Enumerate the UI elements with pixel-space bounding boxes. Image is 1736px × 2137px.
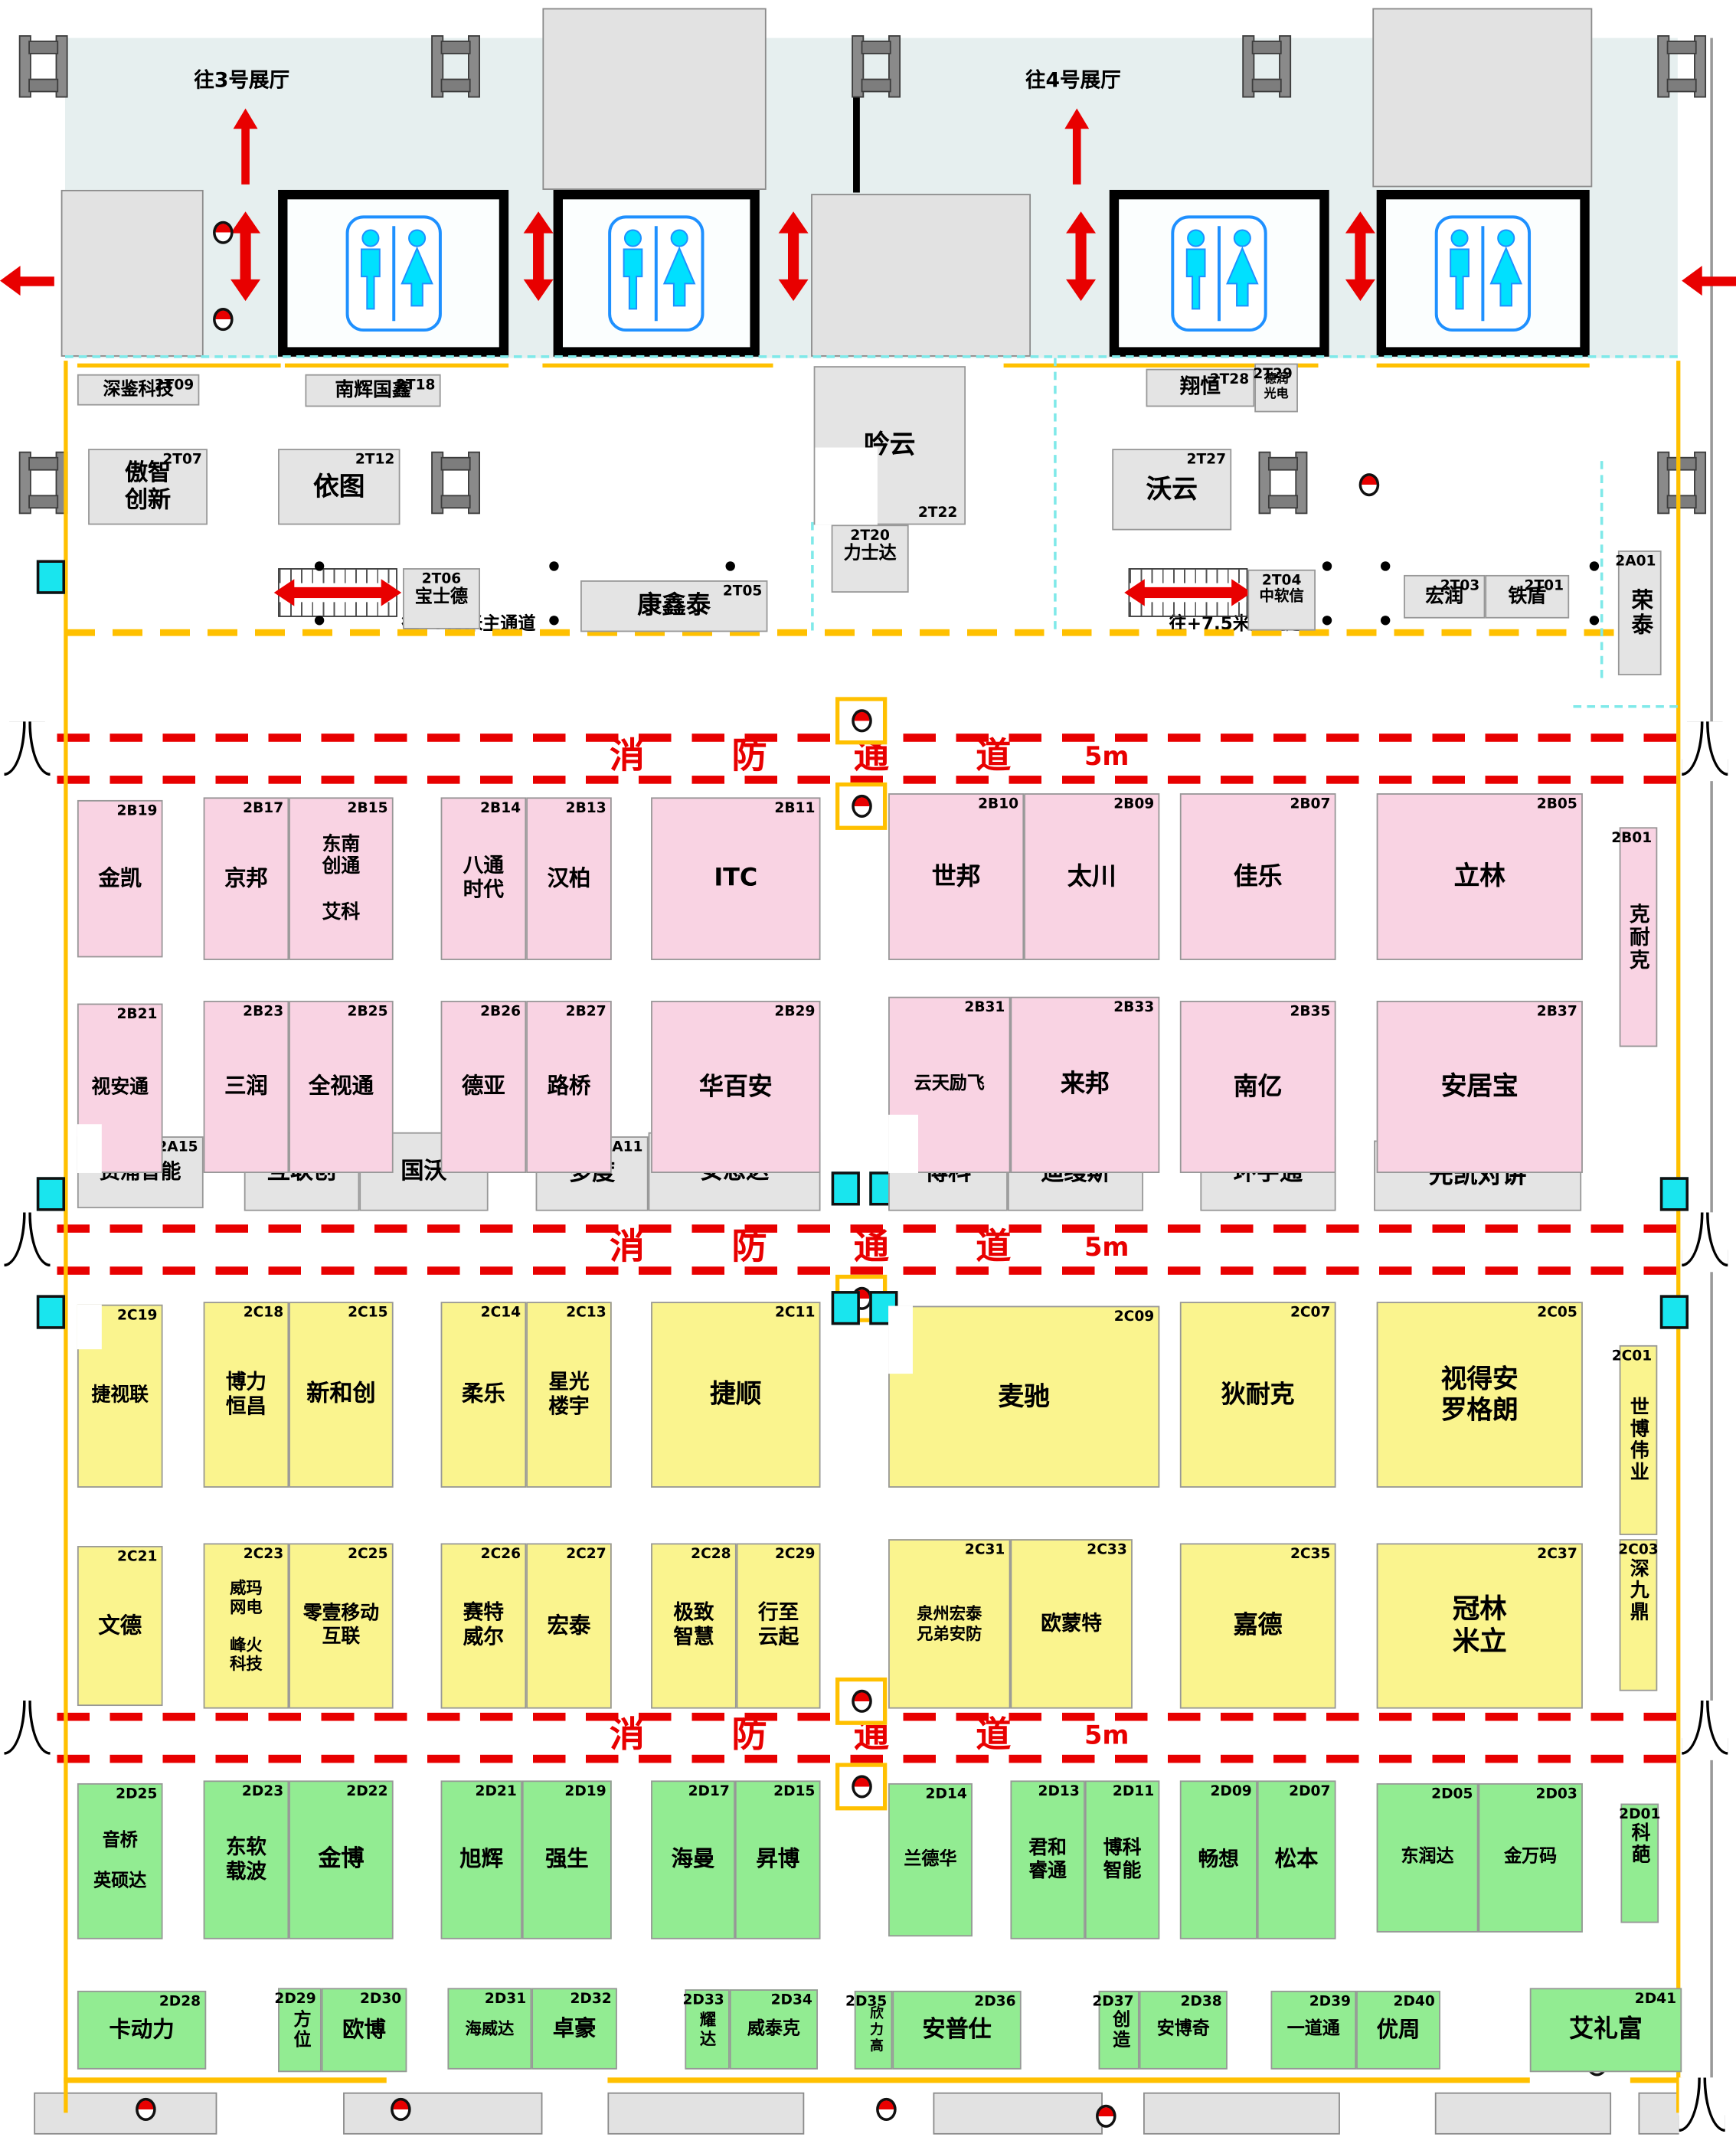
no-entry-sign-icon bbox=[851, 1690, 871, 1713]
boundary-line bbox=[1630, 2077, 1682, 2083]
booth-2C07[interactable]: 2C07狄耐克 bbox=[1180, 1302, 1336, 1488]
column-icon bbox=[431, 452, 480, 514]
booth-name: 方位 bbox=[291, 2010, 309, 2050]
booth-name: 狄耐克 bbox=[1221, 1381, 1295, 1410]
booth-name: 柔乐 bbox=[462, 1382, 505, 1407]
column-dot bbox=[549, 561, 558, 570]
hydrant-marker bbox=[37, 1177, 65, 1211]
booth-id: 2B17 bbox=[243, 800, 283, 816]
booth-id: 2C03 bbox=[1618, 1542, 1658, 1558]
booth-name: 德亚 bbox=[462, 1074, 505, 1100]
restroom bbox=[554, 190, 760, 357]
booth-id: 2B14 bbox=[480, 800, 521, 816]
booth-id: 2C19 bbox=[117, 1307, 157, 1323]
booth-2C13[interactable]: 2C13星光 楼宇 bbox=[526, 1302, 612, 1488]
stairs-icon bbox=[1129, 568, 1248, 617]
booth-2B17[interactable]: 2B17京邦 bbox=[204, 797, 289, 960]
booth-name: 海威达 bbox=[465, 2019, 514, 2038]
booth-name: 赛特 威尔 bbox=[463, 1602, 504, 1650]
booth-2D14[interactable]: 2D14兰德华 bbox=[888, 1783, 973, 1936]
booth-2D01[interactable]: 2D01科葩 bbox=[1620, 1804, 1659, 1923]
booth-name: 海曼 bbox=[672, 1847, 715, 1872]
column-icon bbox=[19, 452, 68, 514]
booth-name: 路桥 bbox=[548, 1074, 591, 1100]
booth-name: 来邦 bbox=[1061, 1070, 1110, 1100]
booth-name: 强生 bbox=[545, 1847, 589, 1872]
booth-2B37[interactable]: 2B37安居宝 bbox=[1377, 1001, 1583, 1173]
booth-name: 极致 智慧 bbox=[673, 1602, 714, 1650]
column-dot bbox=[1322, 616, 1332, 625]
booth-id: 2B29 bbox=[774, 1004, 815, 1020]
service-block bbox=[811, 194, 1031, 357]
column-icon bbox=[1259, 452, 1308, 514]
booth-2T04[interactable]: 2T04中软信 bbox=[1247, 570, 1316, 631]
two-way-arrow-icon bbox=[230, 211, 260, 301]
booth-2B14[interactable]: 2B14八通 时代 bbox=[441, 797, 527, 960]
booth-id: 2D15 bbox=[773, 1783, 815, 1799]
booth-2T29[interactable]: 2T29德润 光电 bbox=[1254, 364, 1298, 413]
fire-lane-dashed-line bbox=[57, 1755, 1682, 1763]
fire-lane-char: 道 bbox=[976, 1230, 1011, 1265]
booth-name: 君和 睿通 bbox=[1028, 1838, 1067, 1883]
booth-name: 国沃 bbox=[400, 1158, 446, 1185]
column-dot bbox=[726, 561, 735, 570]
booth-id: 2D13 bbox=[1038, 1783, 1080, 1799]
booth-2D13[interactable]: 2D13君和 睿通 bbox=[1010, 1780, 1084, 1939]
booth-name: 华百安 bbox=[699, 1073, 773, 1102]
booth-id: 2C28 bbox=[691, 1546, 731, 1562]
booth-name: 全视通 bbox=[309, 1074, 374, 1100]
booth-id: 2C29 bbox=[775, 1546, 815, 1562]
booth-id: 2B21 bbox=[116, 1006, 157, 1022]
booth-name: ITC bbox=[714, 864, 757, 894]
booth-id: 2B27 bbox=[566, 1004, 606, 1020]
booth-name: 深九鼎 bbox=[1629, 1558, 1648, 1623]
booth-id: 2C09 bbox=[1114, 1309, 1154, 1325]
booth-id: 2C13 bbox=[566, 1305, 606, 1321]
column-icon bbox=[1657, 452, 1706, 514]
column-icon bbox=[431, 35, 480, 97]
booth-id: 2C21 bbox=[117, 1549, 157, 1565]
booth-2D33[interactable]: 2D33耀达 bbox=[685, 1989, 729, 2069]
booth-2D41[interactable]: 2D41艾礼富 bbox=[1530, 1988, 1682, 2072]
booth-id: 2B23 bbox=[243, 1004, 283, 1020]
booth-id: 2T07 bbox=[162, 452, 202, 468]
booth-name: 欣力高 bbox=[867, 2005, 881, 2054]
fire-lane-char: 防 bbox=[731, 739, 767, 774]
booth-id: 2B37 bbox=[1537, 1004, 1577, 1020]
column-dot bbox=[1322, 561, 1332, 570]
entrance-arrow-icon bbox=[1682, 266, 1736, 296]
booth-2D38[interactable]: 2D38安博奇 bbox=[1139, 1991, 1228, 2070]
booth-id: 2C01 bbox=[1612, 1348, 1652, 1364]
two-way-arrow-icon bbox=[524, 211, 554, 301]
fire-lane-width: 5m bbox=[1084, 1723, 1130, 1749]
booth-id: 2C15 bbox=[348, 1305, 387, 1321]
guide-dashed-line bbox=[1054, 358, 1057, 629]
booth-2B07[interactable]: 2B07佳乐 bbox=[1180, 793, 1336, 960]
booth-id: 2T29 bbox=[1253, 366, 1293, 382]
booth-id: 2C31 bbox=[965, 1542, 1005, 1558]
booth-name: 卓豪 bbox=[553, 2016, 597, 2041]
booth-id: 2D31 bbox=[485, 1991, 526, 2007]
booth-2C33[interactable]: 2C33欧蒙特 bbox=[1010, 1539, 1132, 1708]
booth-name: 松本 bbox=[1275, 1847, 1319, 1872]
booth-id: 2B35 bbox=[1290, 1004, 1330, 1020]
booth-name: 新和创 bbox=[306, 1381, 375, 1409]
booth-2T06[interactable]: 2T06宝士德 bbox=[403, 568, 480, 629]
boundary-line bbox=[64, 2077, 387, 2083]
booth-name: 昇博 bbox=[756, 1847, 799, 1872]
booth-id: 2D07 bbox=[1289, 1783, 1330, 1799]
no-entry-sign-icon bbox=[213, 221, 234, 244]
door-arc-icon bbox=[1682, 1701, 1728, 1760]
two-way-arrow-icon bbox=[779, 211, 809, 301]
booth-2C03[interactable]: 2C03深九鼎 bbox=[1620, 1539, 1658, 1691]
booth-2D17[interactable]: 2D17海曼 bbox=[651, 1780, 735, 1939]
no-entry-sign-icon bbox=[876, 2098, 897, 2121]
door-arc-icon bbox=[1679, 2077, 1725, 2137]
column-dot bbox=[1381, 561, 1390, 570]
booth-2D25[interactable]: 2D25音桥 英硕达 bbox=[77, 1783, 163, 1939]
booth-name: 威泰克 bbox=[747, 2019, 800, 2040]
booth-2T01[interactable]: 2T01铁盾 bbox=[1485, 575, 1569, 619]
direction-up-arrow-icon bbox=[234, 109, 258, 185]
booth-2T18[interactable]: 2T18南辉国鑫 bbox=[305, 374, 440, 407]
booth-id: 2D22 bbox=[346, 1783, 387, 1799]
booth-id: 2T09 bbox=[155, 377, 195, 393]
booth-2B13[interactable]: 2B13汉柏 bbox=[526, 797, 612, 960]
booth-name: 旭辉 bbox=[459, 1847, 503, 1872]
fire-lane-width: 5m bbox=[1084, 743, 1130, 770]
booth-id: 2C33 bbox=[1087, 1542, 1126, 1558]
booth-name: 安普仕 bbox=[922, 2017, 991, 2044]
service-block bbox=[542, 8, 766, 190]
booth-name: 佳乐 bbox=[1234, 862, 1283, 891]
booth-id: 2T22 bbox=[918, 505, 958, 521]
column-icon bbox=[1657, 35, 1706, 97]
booth-name: 优周 bbox=[1377, 2018, 1421, 2043]
boundary-line bbox=[64, 361, 67, 2112]
fire-lane-char: 道 bbox=[976, 1718, 1011, 1753]
hall-right-wall bbox=[1710, 38, 1713, 2119]
service-block bbox=[607, 2093, 804, 2135]
booth-2T07[interactable]: 2T07傲智 创新 bbox=[88, 449, 208, 524]
booth-2D28[interactable]: 2D28卡动力 bbox=[77, 1991, 206, 2070]
column-dot bbox=[1590, 561, 1599, 570]
to-hall3-label: 往3号展厅 bbox=[194, 65, 289, 93]
booth-id: 2B33 bbox=[1113, 999, 1154, 1015]
booth-2C29[interactable]: 2C29行至 云起 bbox=[737, 1544, 821, 1709]
no-entry-sign-icon bbox=[851, 709, 871, 732]
booth-notch bbox=[888, 1115, 918, 1173]
no-entry-sign-box bbox=[835, 783, 887, 830]
no-entry-sign-icon bbox=[391, 2098, 411, 2121]
booth-2B25[interactable]: 2B25全视通 bbox=[289, 1001, 393, 1173]
no-entry-sign-icon bbox=[851, 795, 871, 818]
booth-name: 威玛 网电 峰火 科技 bbox=[230, 1578, 263, 1674]
booth-name: 康鑫泰 bbox=[637, 592, 711, 621]
boundary-line bbox=[77, 364, 281, 368]
column-dot bbox=[315, 561, 324, 570]
booth-2B10[interactable]: 2B10世邦 bbox=[888, 793, 1024, 960]
booth-2T05[interactable]: 2T05康鑫泰 bbox=[580, 580, 767, 632]
booth-id: 2D14 bbox=[926, 1786, 967, 1802]
boundary-line bbox=[1377, 364, 1590, 368]
booth-name: 依图 bbox=[313, 472, 365, 502]
booth-2D40[interactable]: 2D40优周 bbox=[1356, 1991, 1440, 2070]
booth-2B23[interactable]: 2B23三润 bbox=[204, 1001, 289, 1173]
no-entry-sign-icon bbox=[213, 308, 234, 331]
fire-lane-char: 消 bbox=[610, 1230, 645, 1265]
booth-name: 一道通 bbox=[1287, 2020, 1340, 2041]
booth-2T12[interactable]: 2T12依图 bbox=[278, 449, 400, 524]
booth-2D09[interactable]: 2D09畅想 bbox=[1180, 1780, 1257, 1939]
booth-2T20[interactable]: 2T20力士达 bbox=[832, 524, 909, 593]
booth-id: 2T04 bbox=[1262, 572, 1302, 588]
booth-2D15[interactable]: 2D15昇博 bbox=[735, 1780, 821, 1939]
booth-2C18[interactable]: 2C18博力 恒昌 bbox=[204, 1302, 289, 1488]
booth-2D21[interactable]: 2D21旭辉 bbox=[441, 1780, 522, 1939]
booth-id: 2C23 bbox=[244, 1546, 283, 1562]
booth-id: 2D21 bbox=[476, 1783, 517, 1799]
booth-id: 2B01 bbox=[1611, 830, 1652, 846]
booth-2C15[interactable]: 2C15新和创 bbox=[289, 1302, 393, 1488]
booth-2B26[interactable]: 2B26德亚 bbox=[441, 1001, 527, 1173]
door-arc-icon bbox=[4, 1212, 50, 1272]
entrance-arrow-icon bbox=[0, 266, 54, 296]
booth-name: 云天励飞 bbox=[914, 1074, 985, 1095]
booth-2C23[interactable]: 2C23威玛 网电 峰火 科技 bbox=[204, 1544, 289, 1709]
no-entry-sign-box bbox=[835, 1678, 887, 1725]
booth-2D30[interactable]: 2D30欧博 bbox=[322, 1988, 407, 2072]
column-icon bbox=[852, 35, 901, 97]
booth-id: 2D37 bbox=[1092, 1994, 1133, 2010]
booth-id: 2T28 bbox=[1210, 371, 1250, 387]
booth-id: 2T05 bbox=[723, 583, 763, 600]
column-icon bbox=[19, 35, 68, 97]
direction-up-arrow-icon bbox=[1064, 109, 1089, 185]
door-arc-icon bbox=[4, 721, 50, 781]
booth-id: 2D19 bbox=[564, 1783, 606, 1799]
booth-name: 嘉德 bbox=[1234, 1612, 1283, 1641]
fire-lane-dashed-line bbox=[57, 1266, 1682, 1275]
booth-name: 汉柏 bbox=[548, 866, 591, 891]
booth-2C31[interactable]: 2C31泉州宏泰 兄弟安防 bbox=[888, 1539, 1010, 1708]
no-entry-sign-box bbox=[835, 1763, 887, 1810]
booth-name: 力士达 bbox=[844, 544, 897, 564]
service-block bbox=[61, 190, 204, 357]
column-dot bbox=[315, 616, 324, 625]
booth-2T28[interactable]: 2T28翔恒 bbox=[1146, 369, 1255, 407]
boundary-line bbox=[607, 2077, 1529, 2083]
guide-dashed-line bbox=[811, 522, 814, 631]
guide-dashed-line bbox=[1600, 461, 1604, 678]
booth-id: 2C05 bbox=[1537, 1305, 1577, 1321]
booth-2A01[interactable]: 2A01荣泰 bbox=[1618, 551, 1662, 675]
booth-id: 2T12 bbox=[355, 452, 395, 468]
booth-name: 东软 载波 bbox=[226, 1836, 266, 1884]
booth-2D36[interactable]: 2D36安普仕 bbox=[892, 1991, 1021, 2070]
booth-name: 科葩 bbox=[1630, 1822, 1649, 1866]
booth-2B19[interactable]: 2B19金凯 bbox=[77, 800, 163, 957]
hydrant-marker bbox=[832, 1291, 860, 1325]
booth-name: 安居宝 bbox=[1441, 1072, 1519, 1103]
toilet-icon bbox=[598, 213, 714, 334]
booth-id: 2D39 bbox=[1309, 1994, 1351, 2010]
hydrant-marker bbox=[1660, 1177, 1689, 1211]
fire-lane-char: 道 bbox=[976, 739, 1011, 774]
booth-name: 欧博 bbox=[342, 2018, 386, 2043]
booth-2C25[interactable]: 2C25零壹移动 互联 bbox=[289, 1544, 393, 1709]
booth-id: 2D33 bbox=[682, 1992, 724, 2008]
boundary-line bbox=[285, 364, 508, 368]
booth-2D19[interactable]: 2D19强生 bbox=[522, 1780, 612, 1939]
booth-2C28[interactable]: 2C28极致 智慧 bbox=[651, 1544, 737, 1709]
service-block bbox=[933, 2093, 1103, 2135]
booth-2C27[interactable]: 2C27宏泰 bbox=[526, 1544, 612, 1709]
booth-2D34[interactable]: 2D34威泰克 bbox=[730, 1989, 818, 2069]
guide-dashed-line bbox=[65, 355, 1678, 358]
booth-2D23[interactable]: 2D23东软 载波 bbox=[204, 1780, 289, 1939]
booth-2B29[interactable]: 2B29华百安 bbox=[651, 1001, 820, 1173]
hydrant-marker bbox=[37, 1295, 65, 1328]
booth-2C14[interactable]: 2C14柔乐 bbox=[441, 1302, 527, 1488]
booth-name: 世博伟业 bbox=[1629, 1397, 1648, 1483]
restroom bbox=[278, 190, 508, 357]
booth-name: 金凯 bbox=[98, 866, 142, 891]
booth-id: 2T27 bbox=[1187, 452, 1227, 468]
booth-name: 宝士德 bbox=[415, 587, 468, 608]
booth-2T03[interactable]: 2T03宏润 bbox=[1404, 575, 1485, 619]
booth-name: 艾礼富 bbox=[1569, 2016, 1643, 2045]
booth-2D22[interactable]: 2D22金博 bbox=[289, 1780, 393, 1939]
booth-2D05[interactable]: 2D05东润达 bbox=[1377, 1783, 1479, 1933]
toilet-icon bbox=[328, 213, 459, 334]
booth-2C09[interactable]: 2C09麦驰 bbox=[888, 1306, 1159, 1488]
door-arc-icon bbox=[1682, 1212, 1728, 1272]
booth-id: 2C27 bbox=[566, 1546, 606, 1562]
booth-2C11[interactable]: 2C11捷顺 bbox=[651, 1302, 820, 1488]
booth-name: 畅想 bbox=[1198, 1848, 1239, 1871]
fire-lane-char: 消 bbox=[610, 739, 645, 774]
booth-2C05[interactable]: 2C05视得安 罗格朗 bbox=[1377, 1302, 1583, 1488]
booth-id: 2A01 bbox=[1615, 554, 1656, 570]
booth-2B15[interactable]: 2B15东南 创通 艾科 bbox=[289, 797, 393, 960]
service-block bbox=[34, 2093, 217, 2135]
booth-id: 2D23 bbox=[242, 1783, 283, 1799]
booth-id: 2D01 bbox=[1619, 1806, 1660, 1822]
booth-2B11[interactable]: 2B11ITC bbox=[651, 797, 820, 960]
booth-id: 2D25 bbox=[116, 1786, 157, 1802]
booth-2B05[interactable]: 2B05立林 bbox=[1377, 793, 1583, 960]
service-block bbox=[1143, 2093, 1340, 2135]
booth-id: 2C25 bbox=[348, 1546, 387, 1562]
booth-name: 沃云 bbox=[1146, 475, 1198, 505]
booth-id: 2D09 bbox=[1210, 1783, 1251, 1799]
booth-id: 2T03 bbox=[1440, 577, 1480, 593]
booth-id: 2T01 bbox=[1525, 577, 1564, 593]
booth-name: 中软信 bbox=[1259, 589, 1303, 606]
booth-id: 2C14 bbox=[481, 1305, 521, 1321]
booth-id: 2C26 bbox=[481, 1546, 521, 1562]
booth-2B33[interactable]: 2B33来邦 bbox=[1010, 997, 1159, 1173]
boundary-dashed-line bbox=[65, 629, 1678, 636]
door-arc-icon bbox=[4, 1701, 50, 1760]
booth-2D37[interactable]: 2D37创造 bbox=[1099, 1991, 1139, 2070]
booth-id: 2D41 bbox=[1635, 1991, 1676, 2007]
booth-2D35[interactable]: 2D35欣力高 bbox=[855, 1991, 893, 2070]
booth-name: 耀达 bbox=[699, 2011, 715, 2049]
booth-id: 2D29 bbox=[274, 1991, 315, 2007]
booth-notch bbox=[77, 1305, 102, 1349]
booth-id: 2D03 bbox=[1536, 1786, 1577, 1802]
booth-2C01[interactable]: 2C01世博伟业 bbox=[1620, 1345, 1658, 1535]
booth-name: 视得安 罗格朗 bbox=[1441, 1364, 1519, 1425]
booth-id: 2B31 bbox=[964, 999, 1005, 1015]
booth-2D07[interactable]: 2D07松本 bbox=[1257, 1780, 1336, 1939]
booth-2D11[interactable]: 2D11博科 智能 bbox=[1085, 1780, 1159, 1939]
booth-id: 2T06 bbox=[422, 571, 462, 587]
booth-name: 麦驰 bbox=[998, 1381, 1049, 1412]
fire-lane-width: 5m bbox=[1084, 1235, 1130, 1261]
booth-id: 2C18 bbox=[244, 1305, 283, 1321]
no-entry-sign-box bbox=[835, 697, 887, 744]
booth-name: 零壹移动 互联 bbox=[303, 1603, 379, 1648]
fire-lane-char: 通 bbox=[854, 1230, 889, 1265]
booth-2B27[interactable]: 2B27路桥 bbox=[526, 1001, 612, 1173]
booth-2T09[interactable]: 2T09深鉴科技 bbox=[77, 374, 199, 406]
booth-2B01[interactable]: 2B01克耐克 bbox=[1620, 827, 1658, 1047]
column-dot bbox=[1590, 616, 1599, 625]
booth-id: 2D11 bbox=[1113, 1783, 1154, 1799]
booth-id: 2B11 bbox=[774, 800, 815, 816]
door-arc-icon bbox=[1682, 721, 1728, 781]
booth-id: 2A15 bbox=[157, 1139, 198, 1155]
booth-2D29[interactable]: 2D29方位 bbox=[278, 1988, 322, 2072]
booth-2C21[interactable]: 2C21文德 bbox=[77, 1546, 163, 1706]
booth-id: 2C35 bbox=[1290, 1546, 1330, 1562]
booth-id: 2B25 bbox=[348, 1004, 388, 1020]
booth-name: 世邦 bbox=[932, 862, 981, 891]
booth-2T27[interactable]: 2T27沃云 bbox=[1112, 449, 1231, 530]
booth-2B09[interactable]: 2B09太川 bbox=[1024, 793, 1159, 960]
booth-2D32[interactable]: 2D32卓豪 bbox=[531, 1988, 617, 2069]
booth-id: 2B07 bbox=[1290, 796, 1330, 812]
booth-name: 星光 楼宇 bbox=[548, 1371, 589, 1419]
booth-name: 金博 bbox=[318, 1846, 364, 1874]
toilet-icon bbox=[1423, 213, 1543, 334]
booth-2B35[interactable]: 2B35南亿 bbox=[1180, 1001, 1336, 1173]
booth-id: 2B10 bbox=[978, 796, 1018, 812]
booth-id: 2T18 bbox=[396, 377, 436, 393]
booth-name: 卡动力 bbox=[110, 2018, 175, 2043]
booth-name: 创造 bbox=[1110, 2010, 1128, 2050]
booth-id: 2D40 bbox=[1394, 1994, 1435, 2010]
booth-2D03[interactable]: 2D03金万码 bbox=[1478, 1783, 1582, 1933]
fire-lane-char: 防 bbox=[731, 1230, 767, 1265]
booth-2D39[interactable]: 2D39一道通 bbox=[1271, 1991, 1357, 2070]
booth-name: 荣泰 bbox=[1629, 589, 1650, 638]
booth-2C26[interactable]: 2C26赛特 威尔 bbox=[441, 1544, 527, 1709]
booth-name: 视安通 bbox=[92, 1077, 149, 1100]
booth-name: 安博奇 bbox=[1157, 2020, 1210, 2041]
no-entry-sign-icon bbox=[1096, 2105, 1116, 2128]
booth-2C35[interactable]: 2C35嘉德 bbox=[1180, 1544, 1336, 1709]
booth-2C37[interactable]: 2C37冠林 米立 bbox=[1377, 1544, 1583, 1709]
fire-lane-2: 消防通道5m bbox=[57, 1224, 1682, 1275]
booth-2D31[interactable]: 2D31海威达 bbox=[447, 1988, 531, 2069]
